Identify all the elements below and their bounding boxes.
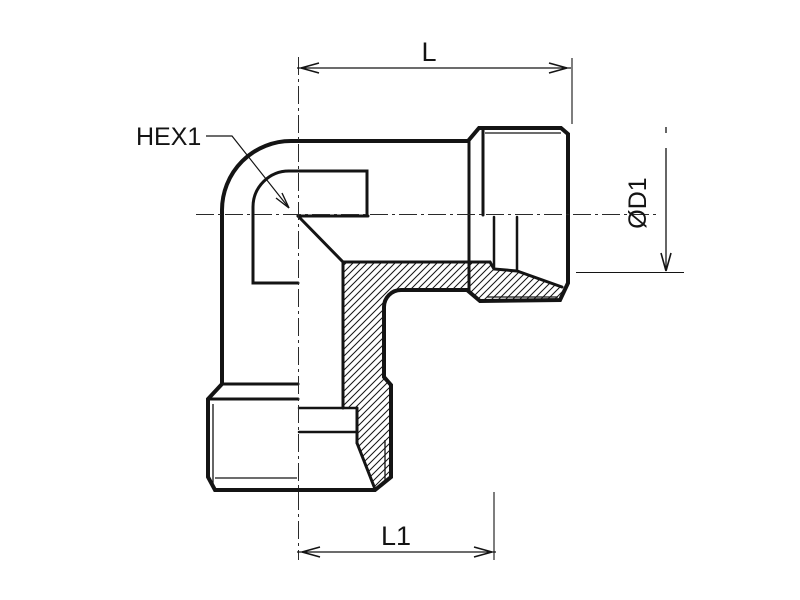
- drawing-background: [0, 0, 800, 600]
- elbow-fitting-drawing: L L1 ØD1 HEX1: [0, 0, 800, 600]
- hex1-label: HEX1: [136, 123, 201, 151]
- dim-L-label: L: [421, 37, 436, 67]
- dim-D1-label: ØD1: [624, 177, 652, 228]
- dim-L1-label: L1: [381, 521, 411, 551]
- technical-drawing-canvas: L L1 ØD1 HEX1: [0, 0, 800, 600]
